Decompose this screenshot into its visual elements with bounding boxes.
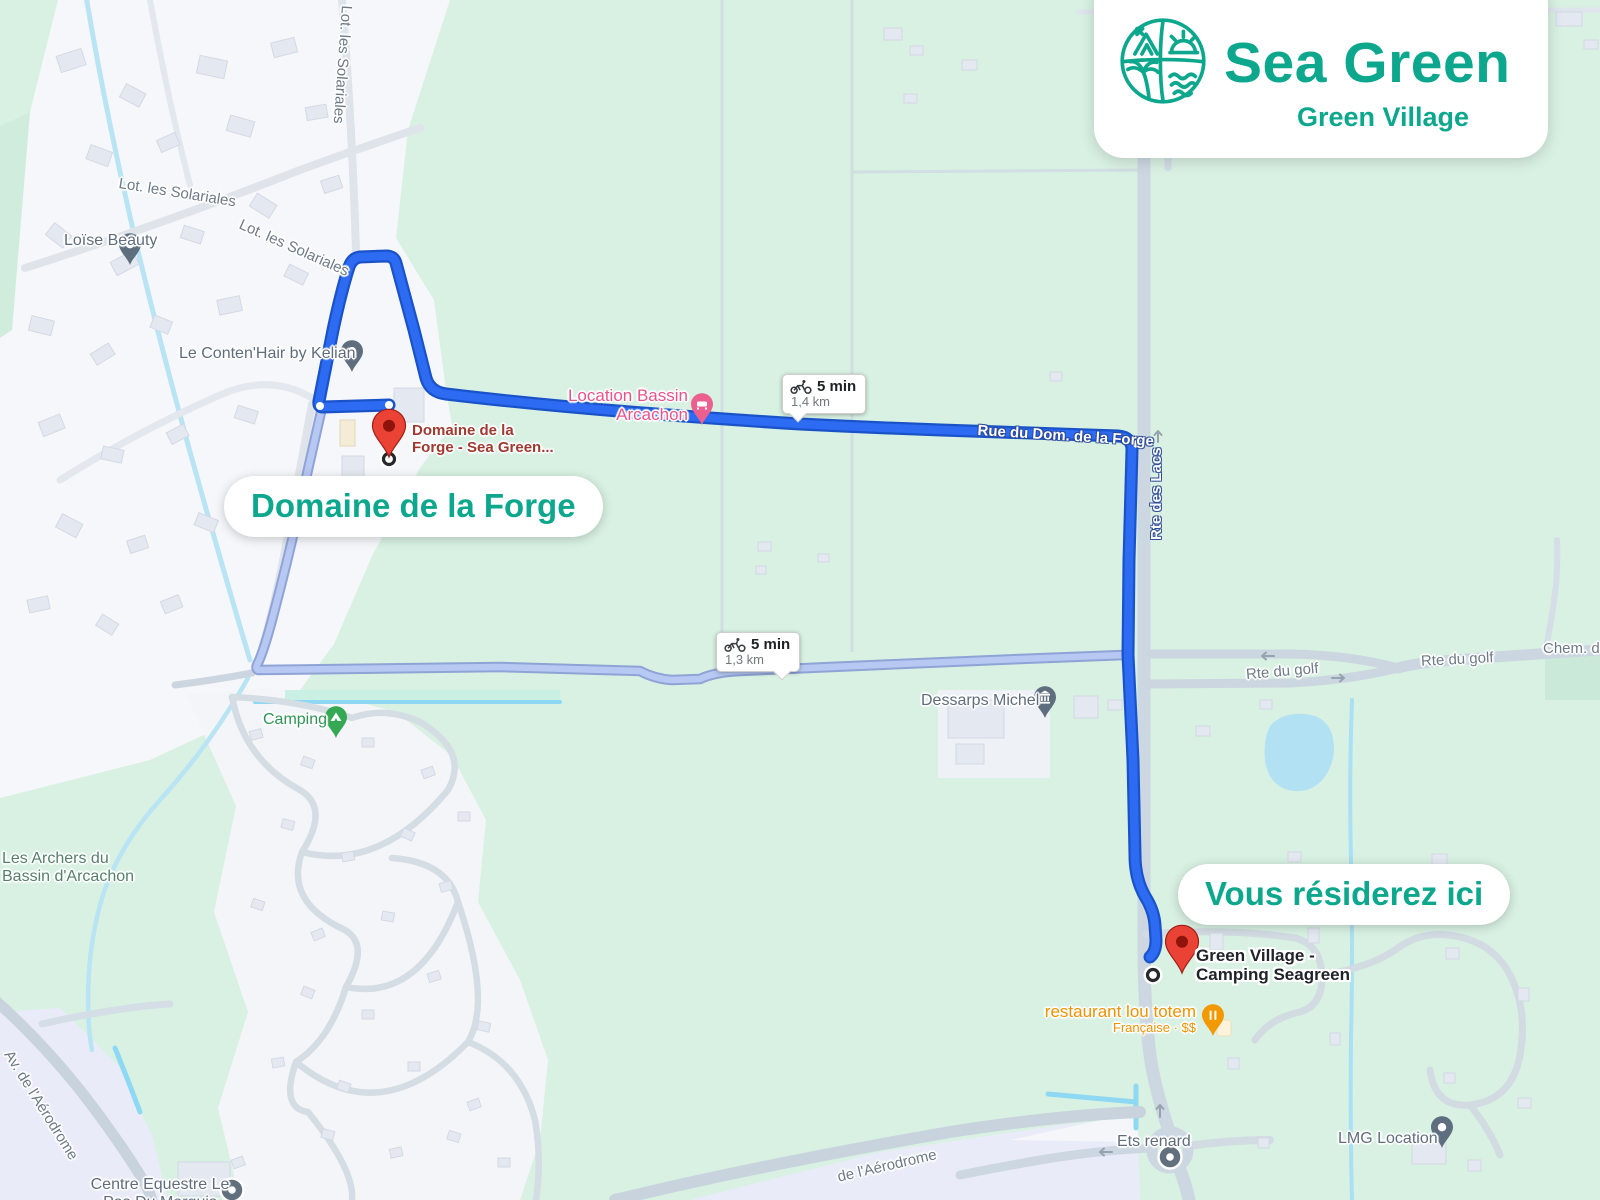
poi-label-location-bassin[interactable]: Location Bassin Arcachon [560,386,688,424]
brand-card: Sea Green Green Village [1094,0,1548,158]
street-label-rte-des-lacs: Rte des Lacs [1149,447,1166,540]
poi-label-restaurant[interactable]: restaurant lou totem Française · $$ [1040,1002,1196,1036]
map-canvas[interactable] [0,0,1600,1200]
brand-subtitle: Green Village [1224,102,1542,133]
poi-label-lmg[interactable]: LMG Location [1338,1130,1438,1148]
poi-label-archers[interactable]: Les Archers du Bassin d'Arcachon [2,850,134,886]
route-distance: 1,4 km [791,394,856,409]
sea-green-logo-icon [1118,16,1208,106]
poi-label-camping[interactable]: Camping [263,711,327,729]
route-duration: 5 min [817,378,856,395]
brand-title: Sea Green [1224,30,1511,96]
poi-label-ets-renard[interactable]: Ets renard [1117,1133,1191,1151]
poi-label-loise-beauty[interactable]: Loïse Beauty [64,232,157,250]
route-duration: 5 min [751,636,790,653]
bicycle-icon [724,637,746,653]
destination-annotation-pill: Vous résiderez ici [1178,864,1510,925]
destination-marker-label[interactable]: Green Village - Camping Seagreen [1196,946,1350,984]
route-destination-target [1144,966,1163,985]
poi-label-dessarps[interactable]: Dessarps Michel [921,692,1039,710]
poi-label-contenhair[interactable]: Le Conten'Hair by Kelian [179,345,356,363]
map-areas [0,0,1600,1200]
street-label-chem: Chem. d [1543,641,1600,658]
poi-label-equestre[interactable]: Centre Equestre Le Pas Du Marquis [75,1176,245,1200]
origin-annotation-pill: Domaine de la Forge [224,476,603,537]
origin-marker-label[interactable]: Domaine de la Forge - Sea Green... [412,423,554,457]
route-badge-alternative[interactable]: 5 min 1,3 km [716,632,800,672]
map-viewport[interactable]: Lot. les Solariales Lot. les Solariales … [0,0,1600,1200]
route-waypoint-dot [385,401,393,409]
route-badge-primary[interactable]: 5 min 1,4 km [782,374,866,414]
bicycle-icon [790,379,812,395]
route-waypoint-dot [316,402,324,410]
